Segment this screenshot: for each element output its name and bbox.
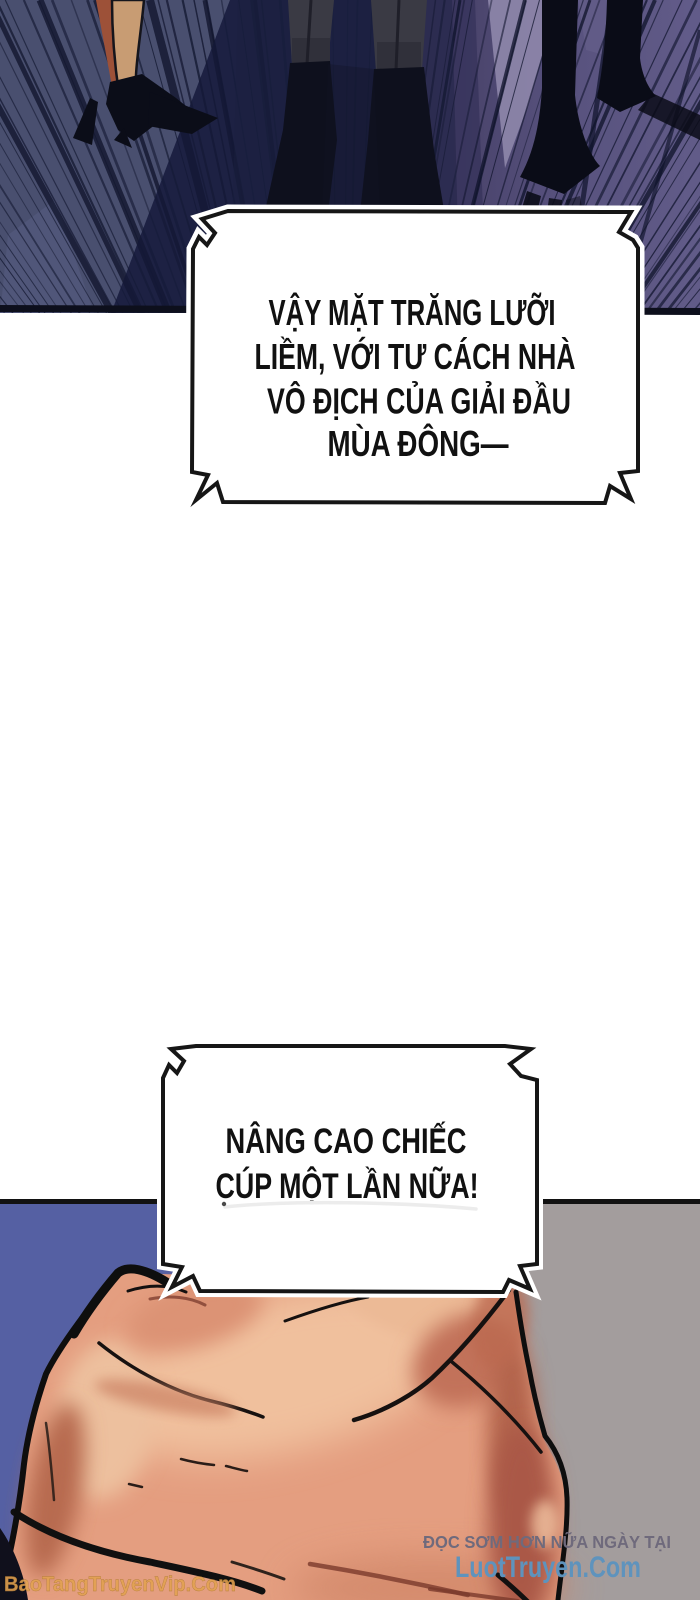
svg-text:NÂNG CAO CHIẾC: NÂNG CAO CHIẾC: [226, 1121, 467, 1161]
svg-text:VẬY MẶT TRĂNG LƯỠI: VẬY MẶT TRĂNG LƯỠI: [269, 291, 556, 333]
svg-text:VÔ ĐỊCH CỦA GIẢI ĐẦU: VÔ ĐỊCH CỦA GIẢI ĐẦU: [267, 380, 571, 422]
svg-text:CÚP MỘT LẦN NỮA!: CÚP MỘT LẦN NỮA!: [216, 1166, 479, 1206]
svg-text:BaoTangTruyenVip.Com: BaoTangTruyenVip.Com: [4, 1573, 236, 1596]
svg-text:LuotTruyen.Com: LuotTruyen.Com: [455, 1551, 641, 1584]
svg-text:ĐỌC SƠM HƠN NỮA NGÀY TẠI: ĐỌC SƠM HƠN NỮA NGÀY TẠI: [423, 1531, 671, 1552]
svg-text:LIỀM, VỚI TƯ CÁCH NHÀ: LIỀM, VỚI TƯ CÁCH NHÀ: [255, 335, 576, 377]
svg-text:MÙA ĐÔNG—: MÙA ĐÔNG—: [328, 422, 509, 464]
